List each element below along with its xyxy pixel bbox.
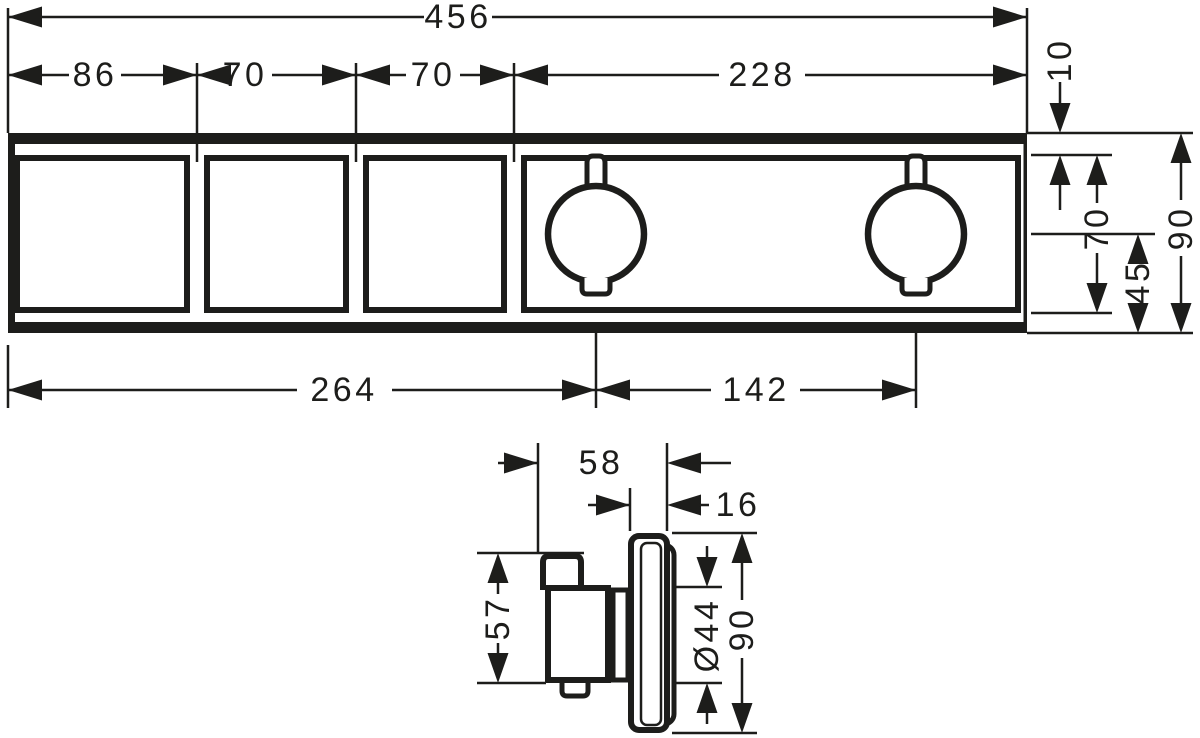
- dim-label-total-depth: 58: [579, 444, 624, 482]
- panel-right-edge: [1024, 133, 1028, 333]
- panel-top-band: [8, 133, 1027, 144]
- arrowhead: [480, 65, 514, 86]
- dim-handle-spacing: 142: [596, 371, 916, 409]
- arrowhead-left: [596, 380, 630, 401]
- dim-plate-depth: 16: [588, 486, 760, 524]
- module-3: [366, 158, 504, 310]
- dim-label-left-to-handle-1: 264: [310, 371, 377, 409]
- arrowhead-down: [1087, 283, 1108, 313]
- dim-label-plate-depth: 16: [716, 486, 761, 524]
- dim-label-module-4: 228: [728, 56, 795, 94]
- panel-left-edge: [8, 133, 15, 333]
- dim-center-to-bottom: 45: [1119, 234, 1157, 333]
- dim-label-module-2: 70: [223, 56, 268, 94]
- side-view: 58 16: [477, 443, 761, 733]
- arrowhead-up: [1171, 133, 1192, 163]
- dim-label-module-height: 70: [1078, 206, 1116, 251]
- dim-total-depth: 58: [498, 444, 731, 482]
- arrowhead-left: [667, 453, 701, 474]
- dim-left-to-handle-1: 264: [8, 371, 596, 409]
- arrowhead-left: [8, 7, 42, 28]
- arrowhead-up: [1050, 155, 1071, 185]
- body-bottom-tab: [562, 683, 588, 696]
- technical-drawing: 456 86 70 70 228: [0, 0, 1200, 738]
- handle-2-tab: [902, 278, 930, 294]
- arrowhead-up: [488, 553, 509, 583]
- wall-plate-profile: [631, 536, 674, 730]
- dim-module-widths: 86 70 70 228: [8, 56, 1027, 94]
- arrowhead-up: [732, 533, 753, 563]
- arrowhead-left: [8, 380, 42, 401]
- arrowhead-up: [1128, 234, 1149, 264]
- plate-inner-face: [641, 543, 661, 725]
- dim-label-module-3: 70: [411, 56, 456, 94]
- panel-front: [8, 133, 1027, 333]
- module-2: [207, 158, 346, 310]
- arrowhead-right: [596, 495, 630, 516]
- arrowhead-right: [504, 453, 538, 474]
- arrowhead: [322, 65, 356, 86]
- arrowhead-right: [882, 380, 916, 401]
- dim-label-center-to-bottom: 45: [1119, 260, 1157, 305]
- dim-top-offset: 10: [1041, 38, 1079, 210]
- arrowhead-right: [993, 7, 1027, 28]
- arrowhead-right: [562, 380, 596, 401]
- handle-1-knob: [548, 186, 644, 282]
- arrowhead-down: [488, 653, 509, 683]
- dim-label-handle-spacing: 142: [722, 371, 789, 409]
- dim-label-plate-height: 90: [723, 607, 761, 652]
- technical-drawing-page: 456 86 70 70 228: [0, 0, 1200, 738]
- arrowhead-down: [1128, 303, 1149, 333]
- dim-label-panel-height: 90: [1162, 206, 1200, 251]
- arrowhead: [8, 65, 42, 86]
- dim-panel-height: 90: [1162, 133, 1200, 333]
- dim-label-body-height: 57: [479, 596, 517, 641]
- arrowhead: [356, 65, 390, 86]
- handle-side-profile: [613, 590, 628, 680]
- module-1: [17, 158, 187, 310]
- panel-bottom-band: [8, 322, 1027, 333]
- arrowhead-left: [667, 495, 701, 516]
- arrowhead: [163, 65, 197, 86]
- body-top-step: [543, 556, 581, 590]
- dim-label-total-width: 456: [424, 0, 491, 36]
- dim-label-module-1: 86: [73, 56, 118, 94]
- arrowhead-down: [697, 557, 718, 587]
- handle-1-tab: [582, 278, 610, 294]
- arrowhead-up: [697, 683, 718, 713]
- valve-body-profile: [543, 556, 628, 696]
- arrowhead: [993, 65, 1027, 86]
- arrowhead-down: [1050, 103, 1071, 133]
- arrowhead-down: [1171, 303, 1192, 333]
- dim-handle-diameter: Ø44: [676, 546, 726, 724]
- dim-label-top-offset: 10: [1041, 38, 1079, 83]
- arrowhead: [514, 65, 548, 86]
- handle-2-knob: [868, 186, 964, 282]
- arrowhead-down: [732, 703, 753, 733]
- body-main: [548, 588, 608, 680]
- dim-total-width: 456: [8, 0, 1027, 36]
- dim-module-height: 70: [1078, 155, 1116, 313]
- arrowhead-up: [1087, 155, 1108, 185]
- dim-label-handle-diameter: Ø44: [688, 598, 726, 673]
- front-view: 456 86 70 70 228: [8, 0, 1200, 409]
